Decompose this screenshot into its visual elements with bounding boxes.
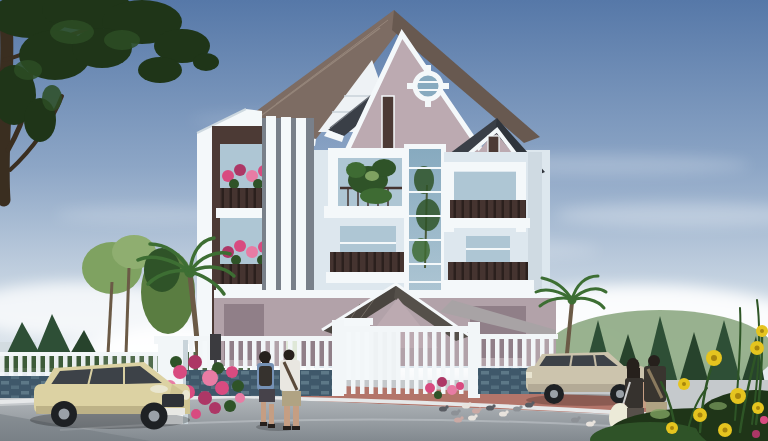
central-balcony	[324, 148, 416, 283]
balcony-rail-lower-right	[448, 262, 528, 280]
glass-strip	[404, 144, 446, 302]
balcony-rail-upper-right	[450, 200, 526, 218]
scene-canvas	[0, 0, 768, 441]
intercom-post	[210, 334, 221, 360]
architectural-rendering	[0, 0, 768, 441]
license-plate	[165, 408, 185, 415]
grille	[162, 394, 184, 407]
